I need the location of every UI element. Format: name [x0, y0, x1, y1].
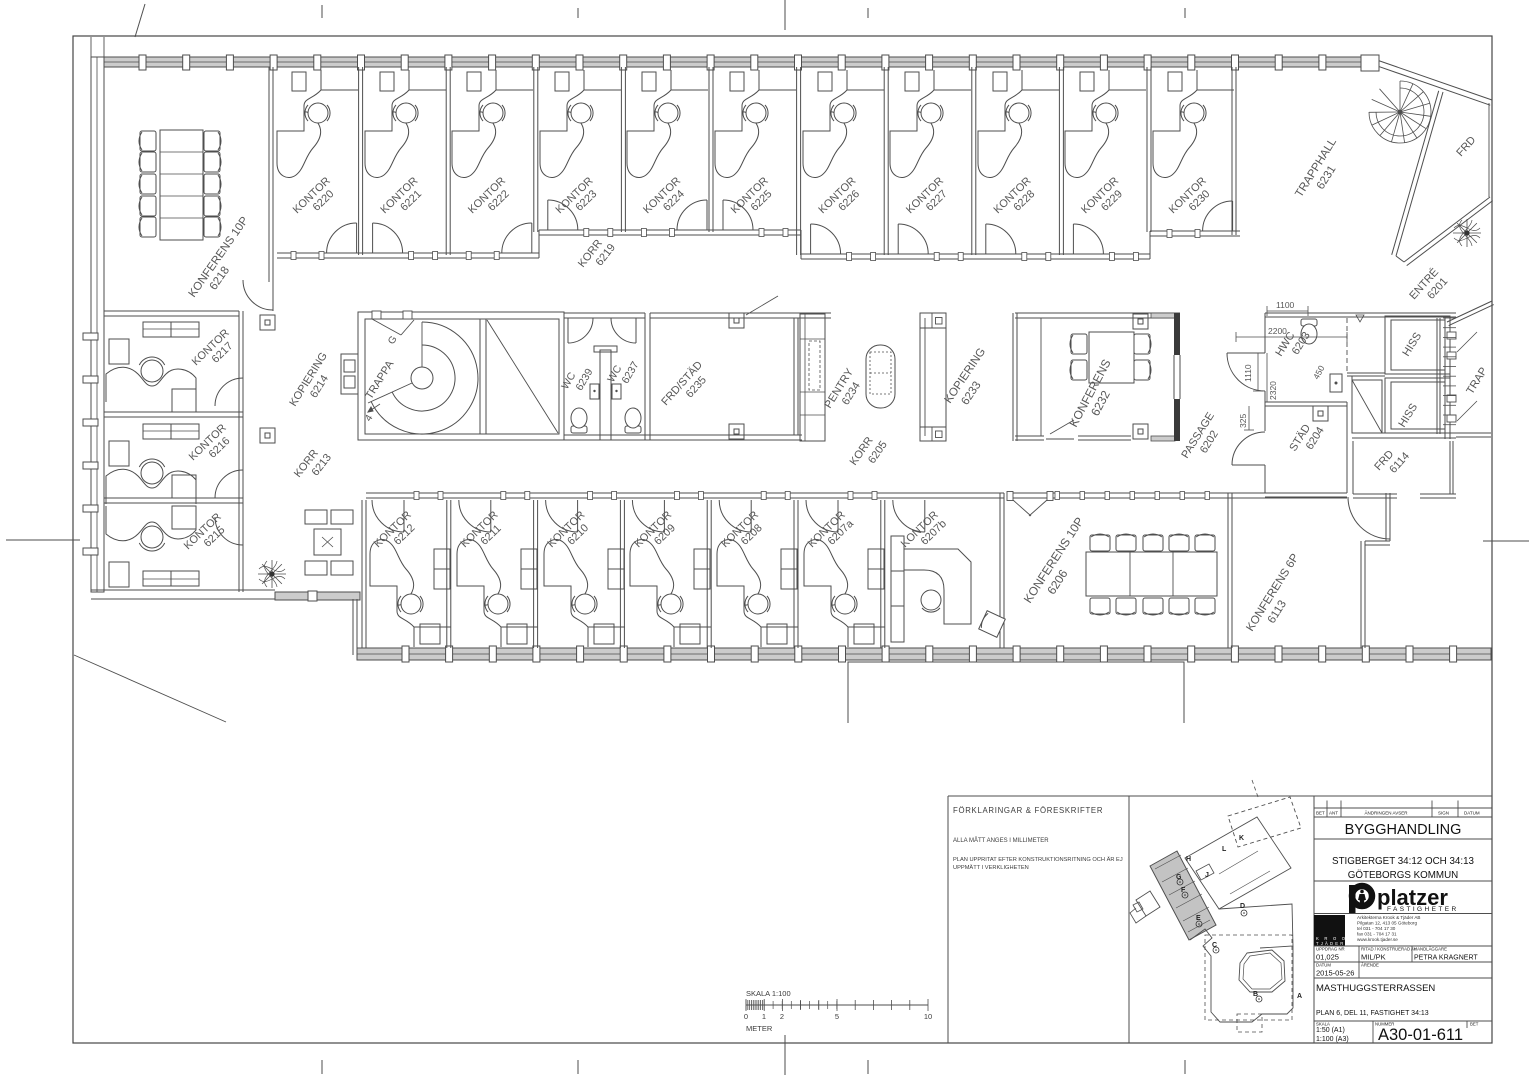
svg-text:FASTIGHETER: FASTIGHETER: [1387, 906, 1459, 913]
svg-text:TJÄDER: TJÄDER: [1316, 941, 1346, 946]
svg-text:METER: METER: [746, 1024, 773, 1033]
svg-text:2320: 2320: [1268, 381, 1278, 400]
svg-text:0: 0: [744, 1012, 748, 1021]
svg-text:325: 325: [1238, 414, 1248, 428]
svg-text:BET: BET: [1470, 1022, 1479, 1027]
svg-text:01,025: 01,025: [1316, 953, 1339, 962]
svg-text:10: 10: [924, 1012, 932, 1021]
svg-text:UPPMÄTT I VERKLIGHETEN: UPPMÄTT I VERKLIGHETEN: [953, 864, 1029, 871]
svg-text:PLAN UPPRITAT EFTER KONSTRUKTI: PLAN UPPRITAT EFTER KONSTRUKTIONSRITNING…: [953, 856, 1123, 863]
svg-text:MIL/PK: MIL/PK: [1361, 953, 1386, 962]
svg-text:1: 1: [762, 1012, 766, 1021]
svg-text:ANT: ANT: [1329, 811, 1338, 816]
svg-text:A30-01-611: A30-01-611: [1378, 1026, 1463, 1044]
svg-text:2: 2: [780, 1012, 784, 1021]
svg-text:H: H: [1186, 856, 1191, 863]
svg-text:BYGGHANDLING: BYGGHANDLING: [1345, 822, 1462, 838]
svg-text:DATUM: DATUM: [1316, 963, 1331, 968]
svg-text:ÄRENDE: ÄRENDE: [1361, 963, 1379, 968]
svg-text:1:100 (A3): 1:100 (A3): [1316, 1036, 1349, 1043]
svg-text:RITAD / KONSTRUERAD AV: RITAD / KONSTRUERAD AV: [1361, 947, 1417, 952]
svg-text:J: J: [1205, 872, 1209, 879]
svg-text:SKALA: SKALA: [1316, 1022, 1330, 1027]
svg-text:GÖTEBORGS KOMMUN: GÖTEBORGS KOMMUN: [1348, 870, 1459, 881]
svg-text:1:50 (A1): 1:50 (A1): [1316, 1027, 1345, 1034]
svg-text:DATUM: DATUM: [1464, 811, 1480, 816]
svg-text:5: 5: [835, 1012, 839, 1021]
svg-text:FÖRKLARINGAR & FÖRESKRIFTER: FÖRKLARINGAR & FÖRESKRIFTER: [953, 806, 1103, 815]
svg-text:BET: BET: [1316, 811, 1325, 816]
svg-text:www.krook.tjader.se: www.krook.tjader.se: [1357, 937, 1398, 942]
svg-text:PETRA KRAGNERT: PETRA KRAGNERT: [1414, 955, 1478, 962]
svg-text:SKALA 1:100: SKALA 1:100: [746, 989, 791, 998]
svg-text:SIGN: SIGN: [1438, 811, 1449, 816]
svg-text:C: C: [1212, 942, 1217, 949]
svg-text:D: D: [1240, 903, 1245, 910]
svg-text:MASTHUGGSTERRASSEN: MASTHUGGSTERRASSEN: [1316, 983, 1435, 994]
svg-text:G: G: [1176, 874, 1182, 881]
svg-text:Arkitekterna Krook & Tjäder AB: Arkitekterna Krook & Tjäder AB: [1357, 915, 1421, 920]
svg-text:Pilgatan 12, 413 05 Göteborg: Pilgatan 12, 413 05 Göteborg: [1357, 921, 1417, 926]
svg-text:K: K: [1239, 835, 1244, 842]
svg-text:fax 031 - 704 17 31: fax 031 - 704 17 31: [1357, 932, 1397, 937]
svg-text:1100: 1100: [1276, 300, 1295, 310]
svg-text:UPPDRAG NR: UPPDRAG NR: [1316, 947, 1345, 952]
svg-text:STIGBERGET 34:12 OCH 34:13: STIGBERGET 34:12 OCH 34:13: [1332, 856, 1474, 867]
svg-text:L: L: [1222, 846, 1227, 853]
svg-text:F: F: [1181, 887, 1186, 894]
svg-text:HANDLÄGGARE: HANDLÄGGARE: [1414, 947, 1447, 952]
svg-text:ÄNDRINGEN AVSER: ÄNDRINGEN AVSER: [1365, 810, 1409, 816]
svg-text:2015-05-26: 2015-05-26: [1316, 969, 1354, 978]
svg-text:A: A: [1297, 993, 1302, 1000]
svg-text:ALLA MÅTT ANGES I MILLIMETER: ALLA MÅTT ANGES I MILLIMETER: [953, 837, 1049, 844]
svg-text:tel 031 - 704 17 30: tel 031 - 704 17 30: [1357, 926, 1396, 931]
svg-text:PLAN 6, DEL 11, FASTIGHET 34:1: PLAN 6, DEL 11, FASTIGHET 34:13: [1316, 1010, 1429, 1017]
svg-text:1110: 1110: [1243, 364, 1253, 382]
